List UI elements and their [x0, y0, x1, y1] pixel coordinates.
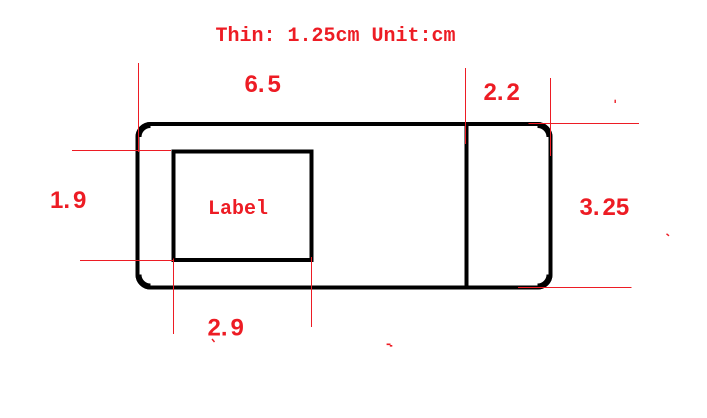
svg-text:2.2: 2.2	[484, 79, 520, 106]
svg-text:2.9: 2.9	[208, 315, 244, 342]
svg-text:Thin: 1.25cm Unit:cm: Thin: 1.25cm Unit:cm	[216, 25, 456, 48]
svg-text:Label: Label	[208, 198, 268, 221]
svg-text:3.25: 3.25	[580, 194, 630, 221]
svg-text:6.5: 6.5	[245, 71, 281, 98]
svg-text:1.9: 1.9	[50, 187, 86, 214]
